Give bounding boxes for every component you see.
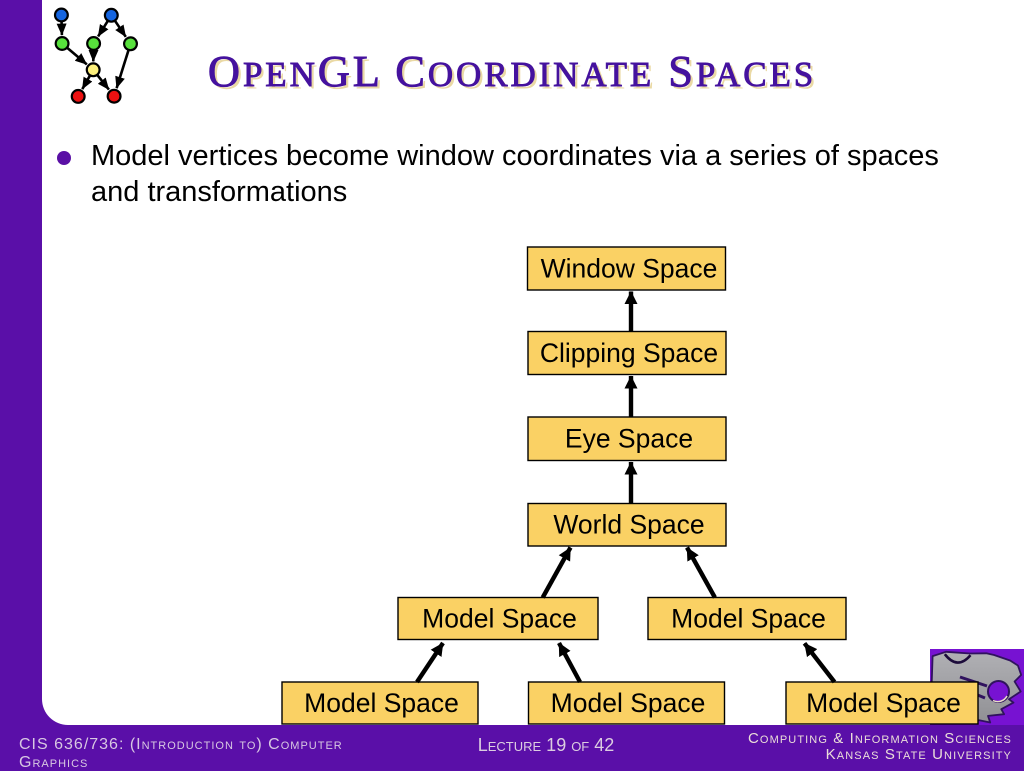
svg-text:Model Space: Model Space: [422, 604, 577, 634]
svg-text:Window Space: Window Space: [541, 254, 718, 284]
svg-text:Model Space: Model Space: [551, 688, 706, 718]
svg-text:Model Space: Model Space: [304, 688, 459, 718]
svg-text:Model Space: Model Space: [671, 604, 826, 634]
svg-text:Eye Space: Eye Space: [565, 424, 693, 454]
svg-text:World Space: World Space: [553, 510, 704, 540]
svg-text:Clipping Space: Clipping Space: [540, 338, 718, 368]
svg-text:Model Space: Model Space: [806, 688, 961, 718]
